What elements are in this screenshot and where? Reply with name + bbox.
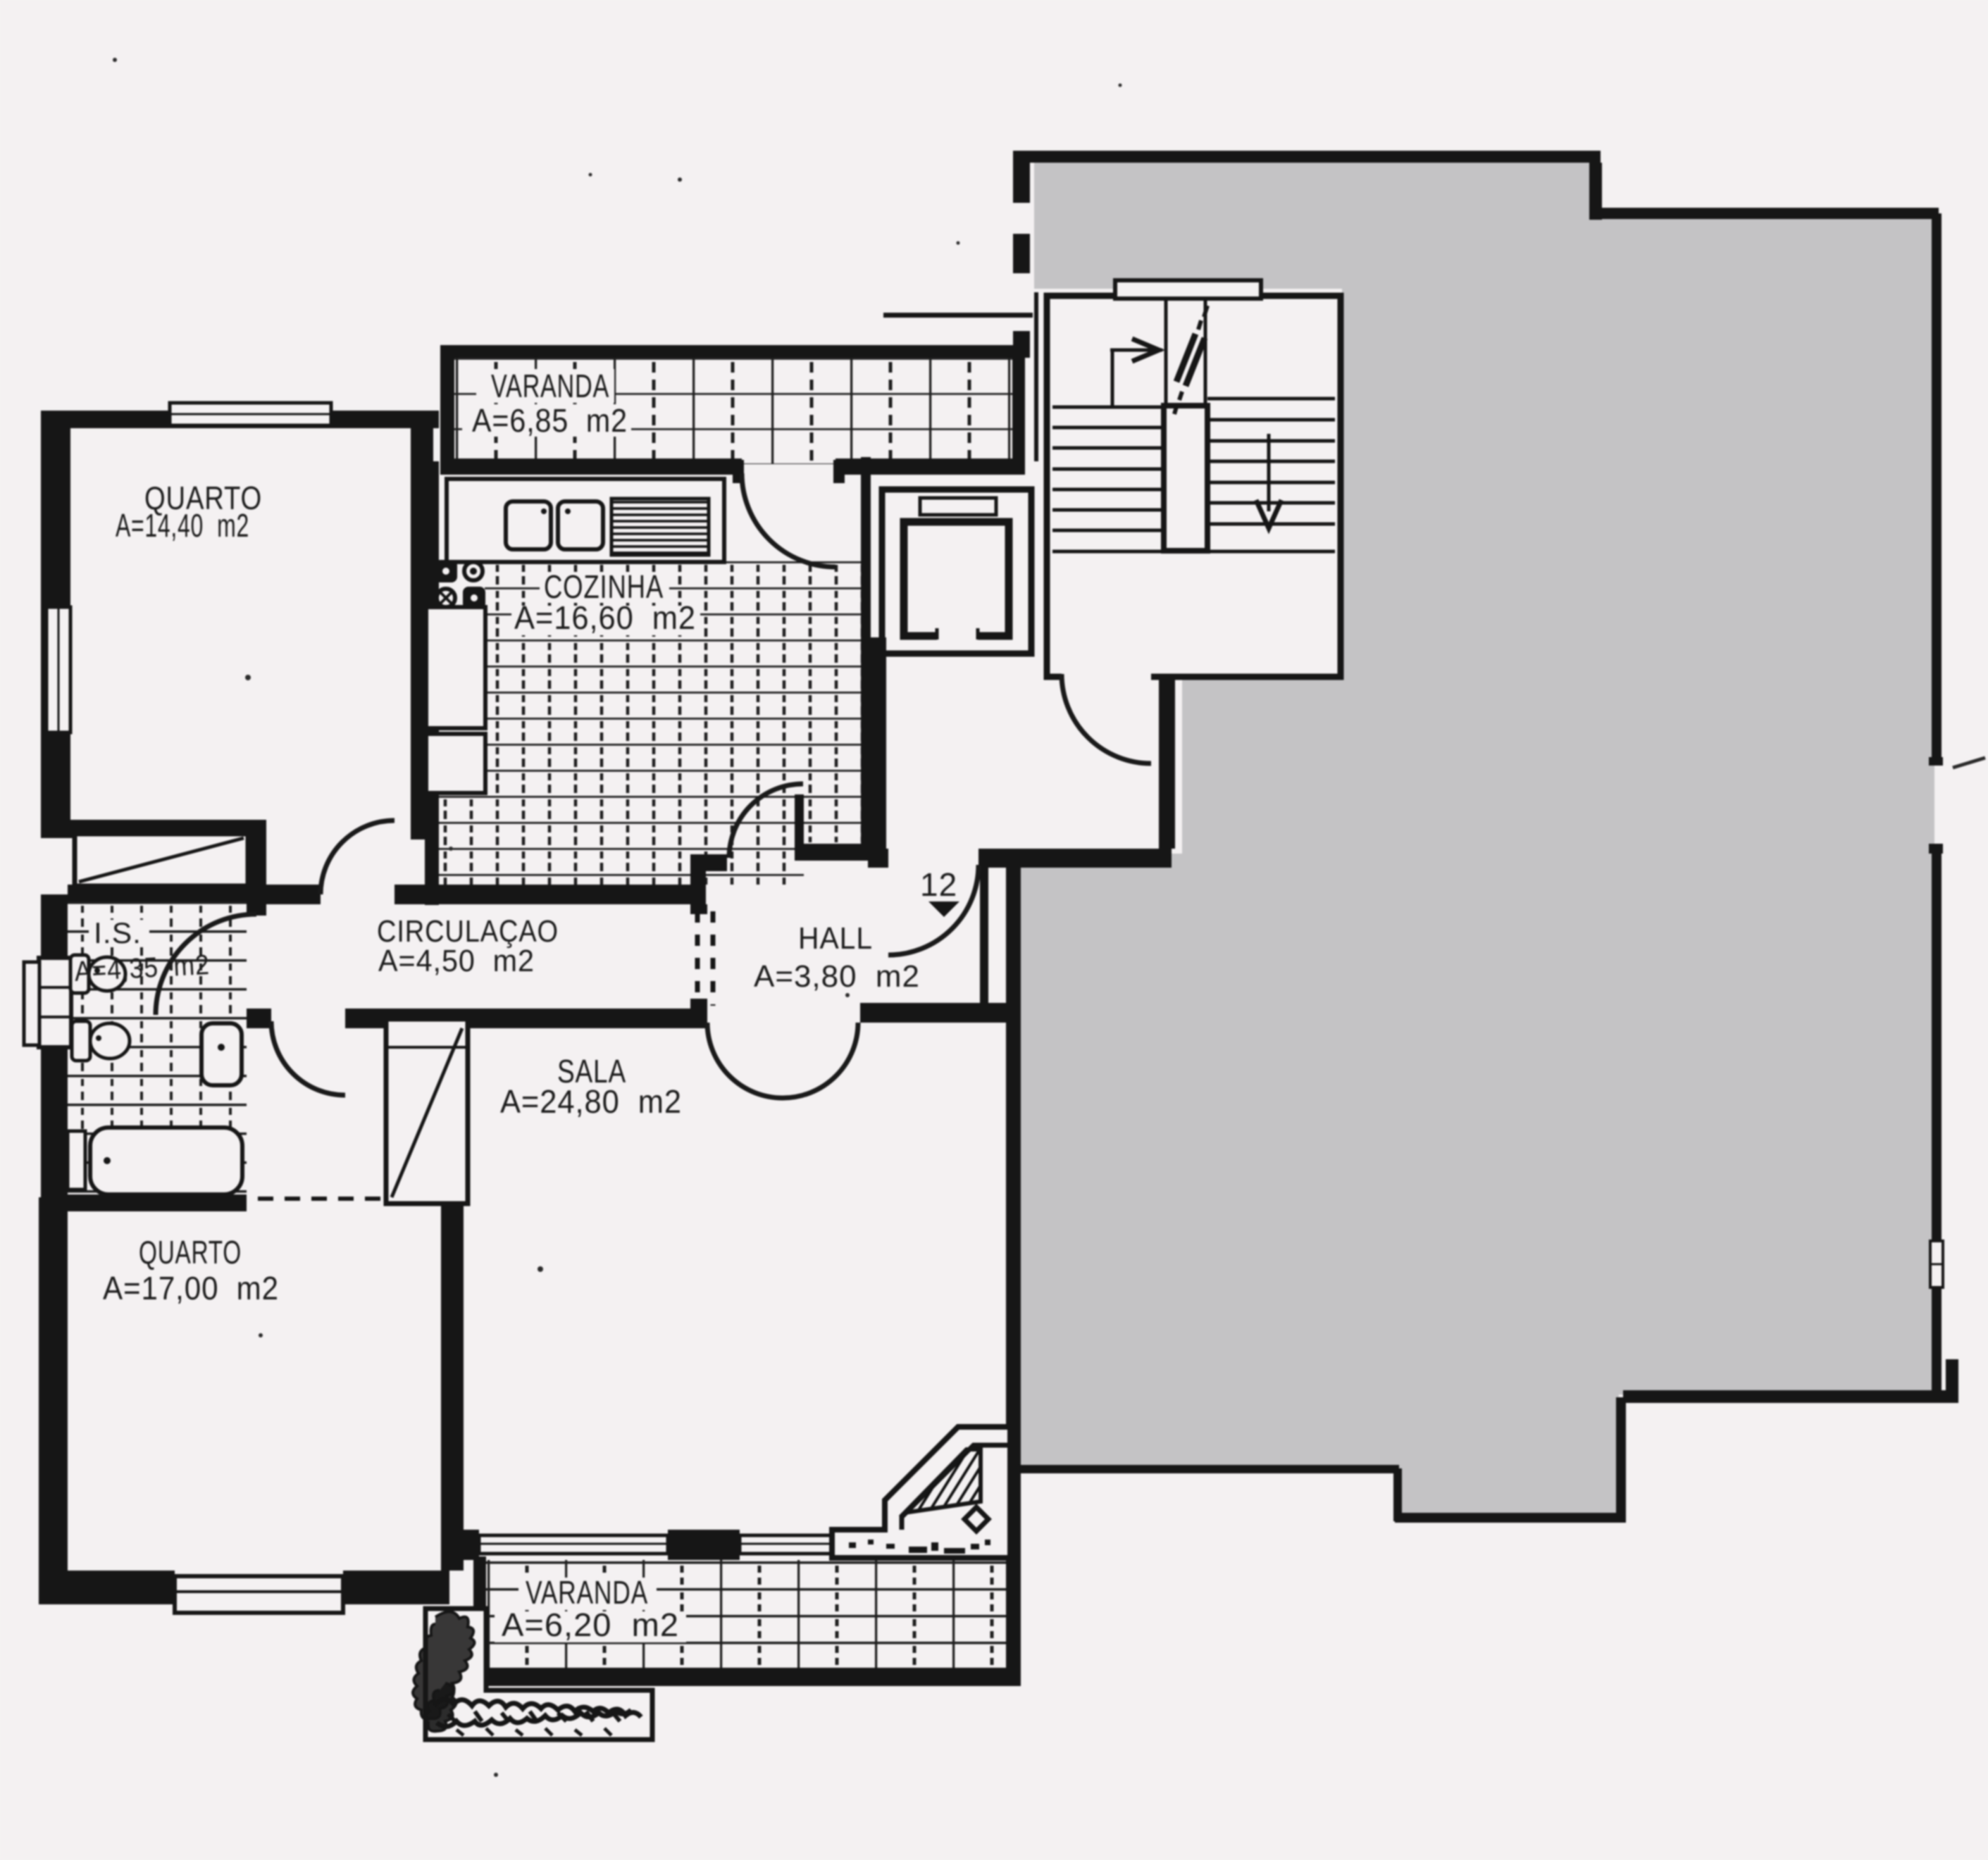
svg-text:12: 12 [920, 866, 957, 903]
svg-text:I.S.: I.S. [94, 916, 142, 949]
svg-text:A=17,00 m2: A=17,00 m2 [103, 1270, 279, 1306]
svg-text:A=16,60 m2: A=16,60 m2 [514, 599, 696, 636]
svg-text:VARANDA: VARANDA [526, 1574, 648, 1611]
svg-text:QUARTO: QUARTO [139, 1234, 242, 1271]
svg-text:A=3,80 m2: A=3,80 m2 [754, 959, 920, 994]
svg-text:A=6,20 m2: A=6,20 m2 [502, 1606, 679, 1643]
svg-text:A=14,40 m2: A=14,40 m2 [116, 507, 249, 544]
svg-text:A=24,80 m2: A=24,80 m2 [500, 1083, 682, 1120]
svg-text:HALL: HALL [798, 921, 873, 956]
svg-text:A=4,50 m2: A=4,50 m2 [378, 944, 535, 978]
svg-text:A=6,85 m2: A=6,85 m2 [472, 402, 628, 439]
svg-text:VARANDA: VARANDA [491, 368, 609, 404]
